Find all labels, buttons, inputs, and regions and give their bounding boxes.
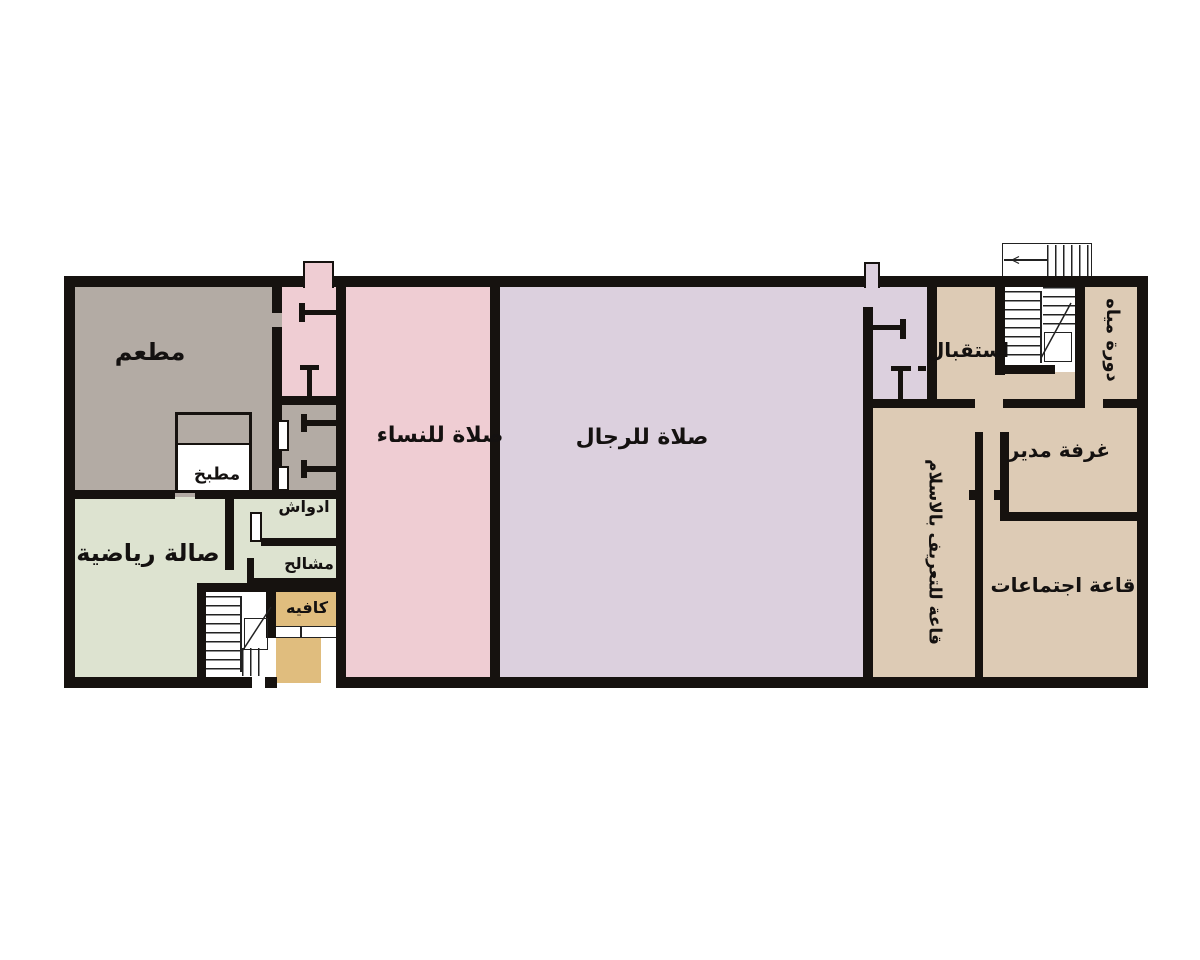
cafe-lower bbox=[276, 638, 321, 683]
wall-rightwing-b bbox=[1003, 399, 1085, 408]
cafe-counter bbox=[276, 626, 338, 638]
label-manager: غرفة مدير bbox=[1008, 440, 1110, 460]
wall-restaurant-gym-a bbox=[64, 490, 175, 499]
outer-wall-bottom-b bbox=[265, 677, 277, 688]
label-gym: صالة رياضية bbox=[76, 541, 220, 565]
stair-treads bbox=[242, 648, 264, 676]
wall-stairtr-bottom bbox=[995, 365, 1055, 374]
wall-rightwing-c bbox=[1103, 399, 1137, 408]
label-kitchen: مطبخ bbox=[194, 467, 240, 484]
outer-wall-bottom-a bbox=[64, 677, 252, 688]
vestibule-women bbox=[303, 261, 334, 288]
label-wc: دورة مياه bbox=[1103, 298, 1121, 382]
door-leaf bbox=[277, 466, 289, 491]
wall-women-left bbox=[336, 276, 346, 688]
label-meeting: قاعة اجتماعات bbox=[991, 575, 1136, 595]
floor-plan: مطعم مطبخ صالة رياضية ادواش مشالح كافيه … bbox=[0, 0, 1200, 960]
stair-treads bbox=[206, 596, 240, 672]
wall-women-men bbox=[490, 276, 500, 688]
wall-stairbl-left bbox=[197, 583, 206, 688]
label-restaurant: مطعم bbox=[115, 340, 186, 364]
outer-wall-top bbox=[64, 276, 1148, 287]
label-men-prayer: صلاة للرجال bbox=[576, 427, 709, 449]
room-women-prayer bbox=[341, 287, 500, 677]
wall-restaurant-corridor-a bbox=[272, 287, 282, 313]
door-leaf bbox=[277, 420, 289, 451]
wall-rightwing-a bbox=[863, 399, 975, 408]
vestibule-men bbox=[864, 262, 880, 288]
label-cafe: كافيه bbox=[286, 600, 328, 616]
room-men-prayer bbox=[500, 287, 873, 677]
outer-wall-left bbox=[64, 276, 75, 688]
wall-men-right bbox=[863, 307, 873, 688]
label-women-prayer: صلاة للنساء bbox=[377, 425, 504, 447]
label-islam-hall: قاعة للتعريف بالاسلام bbox=[926, 459, 943, 645]
wall-islam-meeting bbox=[975, 432, 983, 677]
outer-wall-right bbox=[1137, 276, 1148, 688]
wall-showers-bottom bbox=[261, 538, 341, 546]
kitchen-counter bbox=[178, 415, 249, 445]
wall-gym-showers bbox=[225, 497, 234, 570]
stair-treads bbox=[1047, 245, 1090, 276]
stair-treads bbox=[1005, 291, 1041, 363]
label-changing: مشالح bbox=[284, 556, 334, 572]
wall-stairbl-cafe-top bbox=[197, 583, 341, 592]
label-reception: استقبال bbox=[927, 340, 1009, 360]
outer-wall-bottom-c bbox=[336, 677, 1148, 688]
wall-changing-stub bbox=[247, 558, 254, 586]
wall-manager-bottom bbox=[1000, 512, 1137, 521]
stair-treads bbox=[1043, 287, 1075, 331]
wall-stairtr-right bbox=[1075, 276, 1085, 407]
label-showers: ادواش bbox=[278, 499, 329, 515]
cafe-side-strip bbox=[321, 638, 336, 678]
door-leaf bbox=[250, 512, 262, 542]
